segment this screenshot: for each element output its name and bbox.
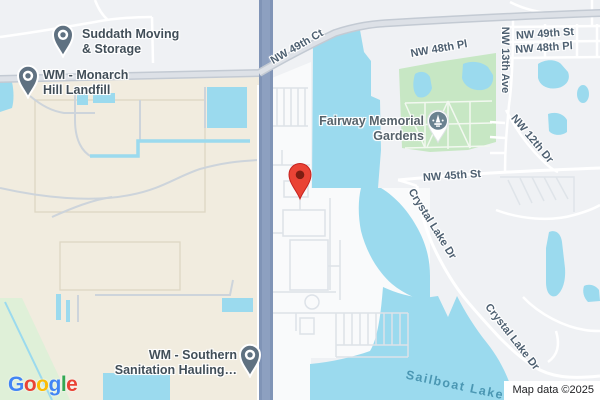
poi-label-fairway[interactable]: Fairway Memorial Gardens <box>307 114 424 144</box>
place-pin-icon <box>236 342 264 378</box>
poi-label-suddath[interactable]: Suddath Moving & Storage <box>82 27 179 57</box>
logo-letter: o <box>36 373 48 396</box>
place-pin-icon <box>14 63 42 99</box>
poi-label-line: Fairway Memorial <box>307 114 424 129</box>
map-attribution: Map data ©2025 <box>504 381 600 400</box>
place-pin-icon <box>49 22 77 58</box>
poi-label-line: WM - Monarch <box>43 68 128 83</box>
place-pin-monarch[interactable] <box>14 63 42 104</box>
place-pin-suddath[interactable] <box>49 22 77 63</box>
poi-label-line: Suddath Moving <box>82 27 179 42</box>
poi-label-line: & Storage <box>82 42 179 57</box>
place-pin-southern[interactable] <box>236 342 264 383</box>
poi-label-line: Hill Landfill <box>43 83 128 98</box>
dropped-pin[interactable] <box>285 161 315 206</box>
poi-label-line: Gardens <box>307 129 424 144</box>
logo-letter: o <box>24 373 36 396</box>
poi-label-monarch[interactable]: WM - Monarch Hill Landfill <box>43 68 128 98</box>
logo-letter: e <box>66 373 77 396</box>
cemetery-badge <box>424 108 452 144</box>
poi-label-southern[interactable]: WM - Southern Sanitation Hauling… <box>112 348 237 378</box>
logo-letter: G <box>8 373 24 396</box>
google-logo[interactable]: Google <box>8 373 77 397</box>
cemetery-icon[interactable] <box>424 108 452 149</box>
poi-label-line: WM - Southern <box>112 348 237 363</box>
poi-label-line: Sanitation Hauling… <box>112 363 237 378</box>
red-pin-icon <box>285 161 315 201</box>
map-canvas[interactable]: Suddath Moving & Storage WM - Monarch Hi… <box>0 0 600 400</box>
logo-letter: g <box>49 373 61 396</box>
